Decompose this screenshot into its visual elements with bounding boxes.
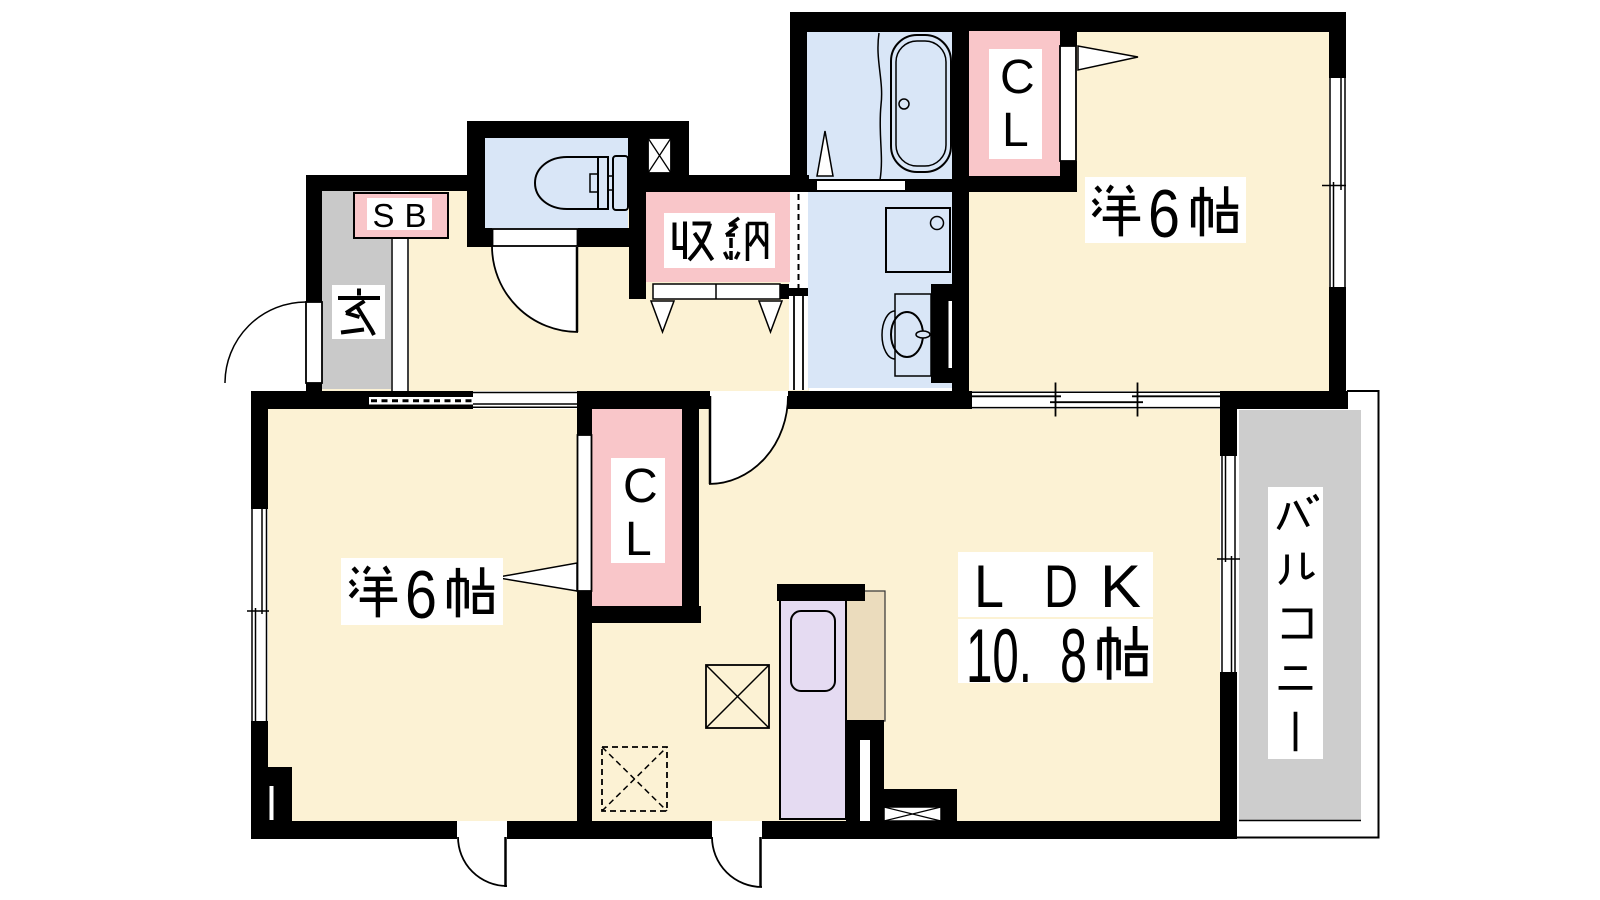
svg-text:L: L: [625, 513, 652, 566]
svg-text:10.: 10.: [966, 614, 1032, 699]
svg-text:C: C: [623, 460, 658, 513]
svg-text:8: 8: [1060, 614, 1087, 699]
svg-text:L: L: [1002, 104, 1029, 157]
svg-text:B: B: [405, 197, 427, 234]
svg-text:L: L: [974, 553, 1004, 620]
svg-text:K: K: [1100, 553, 1141, 620]
svg-text:D: D: [1044, 553, 1078, 620]
svg-text:C: C: [1000, 51, 1035, 104]
svg-text:S: S: [373, 197, 395, 234]
svg-text:6: 6: [1148, 176, 1180, 252]
svg-text:6: 6: [405, 557, 437, 633]
